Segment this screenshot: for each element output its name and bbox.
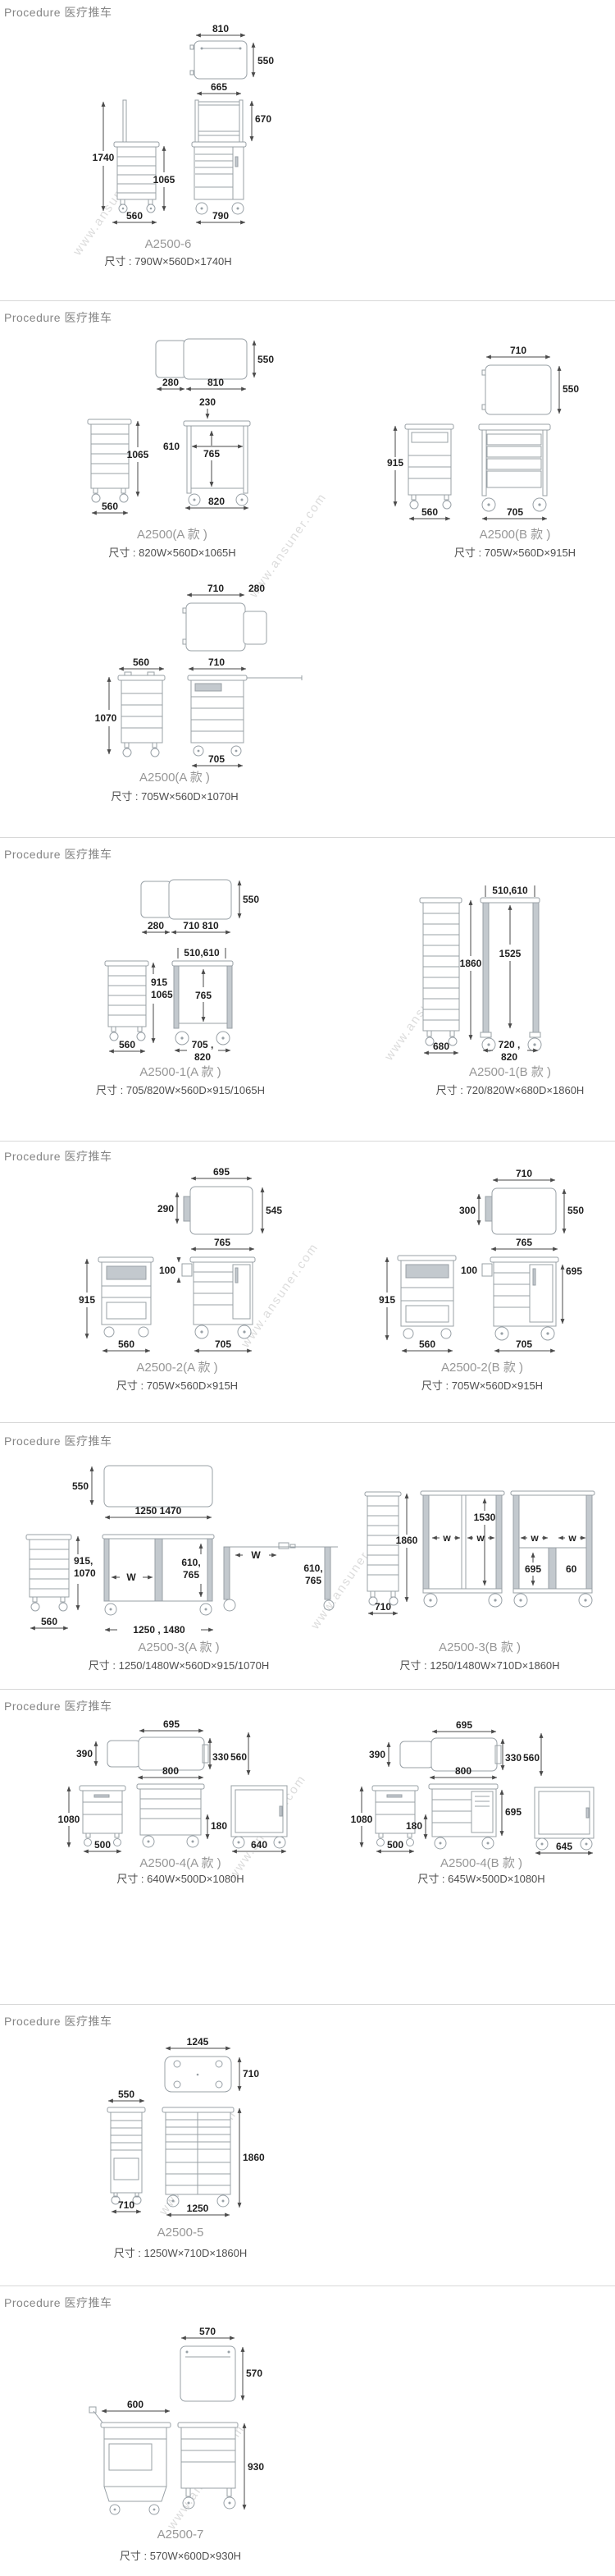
front-view: [490, 1257, 558, 1340]
dim-total-height: 1860: [243, 2152, 265, 2163]
top-view: [141, 880, 231, 919]
drawing-a2500-5: www.ansuner.com 1245 710 550 710: [0, 2005, 615, 2286]
dim-inner2-height-2: 765: [305, 1575, 321, 1586]
dim-front-width-1: 705 ,: [192, 1039, 214, 1050]
dim-rail-width: 665: [211, 81, 227, 93]
dim-back-height: 330: [212, 1751, 229, 1763]
dim-top-width: 695: [213, 1166, 230, 1178]
dim-rail-width: 510,610: [492, 885, 528, 896]
top-view: [104, 1466, 212, 1507]
dim-front-width-2: 820: [194, 1051, 211, 1063]
dim-top-width: 710: [510, 345, 526, 356]
dim-top-width: 695: [163, 1718, 180, 1730]
model-caption: A2500-2(B 款 ): [441, 1361, 523, 1375]
drawing-a2500-4: www.ansuner.com 695 390 330 560 1080 500: [0, 1690, 615, 2005]
size-caption: 尺寸 : 820W×560D×1065H: [108, 547, 235, 559]
dim-top-depth: 550: [72, 1480, 89, 1492]
drawing-a2500-7: www.ansuner.com 570 570 600: [0, 2286, 615, 2576]
dim-gap-height: 180: [211, 1820, 227, 1832]
front-view: [162, 2107, 234, 2207]
dim-w2-label: W: [251, 1549, 261, 1561]
size-caption: 尺寸 : 720/820W×680D×1860H: [436, 1084, 585, 1096]
section-header: Procedure 医疗推车: [4, 846, 112, 862]
section-header: Procedure 医疗推车: [4, 309, 112, 326]
front-view: [172, 961, 233, 1045]
dim-total-height: 1080: [58, 1814, 80, 1825]
section-header: Procedure 医疗推车: [4, 1698, 112, 1714]
dim-front-width: 1250 , 1480: [133, 1624, 185, 1636]
top-view: [183, 603, 266, 651]
section-a2500-6: Procedure 医疗推车 www.ansuner.com 810 550 1…: [0, 0, 615, 300]
section-a2500-3: Procedure 医疗推车 www.ansuner.com 550 1250 …: [0, 1422, 615, 1689]
dim-total-height: 1080: [351, 1814, 373, 1825]
dim-front-width: 800: [162, 1765, 179, 1777]
size-caption: 尺寸 : 705W×560D×915H: [421, 1380, 543, 1392]
size-caption: 尺寸 : 705W×560D×1070H: [111, 790, 238, 803]
dim-w1: w: [442, 1532, 451, 1544]
top-view: [400, 1738, 501, 1771]
section-a2500-5: Procedure 医疗推车 www.ansuner.com 1245 710 …: [0, 2004, 615, 2285]
section-a2500-7: Procedure 医疗推车 www.ansuner.com 570 570 6…: [0, 2285, 615, 2575]
section-a2500: Procedure 医疗推车 www.ansuner.com 550 280 8…: [0, 300, 615, 837]
top-view: [180, 2346, 235, 2401]
dim-side-width: 560: [118, 1338, 134, 1350]
size-caption: 尺寸 : 1250/1480W×560D×915/1070H: [89, 1659, 269, 1672]
side-view: [420, 898, 462, 1045]
drawing-a2500-6: www.ansuner.com 810 550 1740 1065: [0, 0, 615, 300]
dim-cab-width: 645: [556, 1841, 572, 1852]
dim-body-height: 915: [379, 1294, 395, 1306]
dim-top-depth: 550: [563, 383, 579, 395]
model-caption: A2500-4(A 款 ): [139, 1856, 221, 1870]
dim-side-width: 500: [387, 1839, 403, 1851]
dim-ext-depth: 280: [148, 920, 164, 931]
dim-top-depth: 550: [257, 354, 274, 365]
dim-side-width: 560: [102, 501, 118, 512]
side-view: [398, 1256, 456, 1338]
dim-side-width: 560: [119, 1039, 135, 1050]
side-view: [26, 1535, 71, 1611]
drawing-a2500-3: www.ansuner.com 550 1250 1470 915, 1070: [0, 1423, 615, 1690]
section-header: Procedure 医疗推车: [4, 2295, 112, 2311]
top-view: [107, 1737, 208, 1770]
top-view: [156, 339, 247, 379]
dim-top-depth: 560: [230, 1751, 247, 1763]
top-view: [165, 2057, 231, 2092]
dim-top-width: 810: [207, 377, 224, 388]
section-a2500-4: Procedure 医疗推车 www.ansuner.com 695 390 3…: [0, 1689, 615, 2004]
dim-top-depth: 550: [567, 1205, 584, 1216]
size-caption: 尺寸 : 705W×560D×915H: [454, 547, 576, 559]
dim-body-height: 915: [387, 457, 403, 469]
drawing-a2500-2: www.ansuner.com 695 290 545 765 100: [0, 1142, 615, 1423]
side-view: [405, 424, 453, 509]
dim-door-height: 695: [566, 1265, 582, 1277]
side-view: [365, 1492, 401, 1605]
dim-front-width: 790: [212, 210, 229, 222]
dim-top-depth: 545: [266, 1205, 282, 1216]
side-view: [118, 672, 165, 757]
dim-hatch-height: 290: [157, 1203, 174, 1215]
front-view: [190, 1257, 255, 1338]
model-caption: A2500(A 款 ): [139, 771, 210, 785]
dim-top-depth: 550: [243, 894, 259, 905]
dim-cab-width: 640: [251, 1839, 267, 1851]
model-caption: A2500-3(B 款 ): [439, 1640, 521, 1654]
dim-front-width: 705: [507, 506, 523, 518]
dim-w2: w: [476, 1532, 485, 1544]
dim-post-width: 60: [566, 1563, 577, 1575]
dim-w-label: W: [126, 1572, 136, 1583]
dim-top-width: 810: [212, 23, 229, 34]
side-view: [114, 100, 159, 213]
dim-w3: w: [530, 1532, 539, 1544]
dim-body-height-1: 915,: [74, 1555, 93, 1567]
dim-front-bottom-width: 705: [215, 1338, 231, 1350]
dim-top-depth: 550: [257, 55, 274, 66]
side-view: [107, 2107, 145, 2204]
model-caption: A2500(B 款 ): [480, 528, 551, 542]
front-view: [479, 424, 550, 511]
dim-front-width-2: 820: [501, 1051, 517, 1063]
dim-total-height: 1860: [460, 958, 482, 969]
dim-body-height-2: 1065: [151, 989, 173, 1000]
side-view: [372, 1786, 418, 1846]
dim-inner-height-2: 765: [183, 1569, 199, 1581]
dim-top-width: 1250 1470: [135, 1505, 182, 1517]
dim-door-height: 695: [505, 1806, 522, 1818]
dim-body-height: 915: [79, 1294, 95, 1306]
dim-total-height: 1740: [93, 152, 115, 163]
side-view: [88, 419, 131, 502]
model-caption: A2500-1(A 款 ): [139, 1065, 221, 1079]
dim-shelf-height: 695: [525, 1563, 541, 1575]
dim-hatch-height: 300: [459, 1205, 476, 1216]
dim-gap-width: 230: [199, 396, 216, 408]
dim-side-top-width: 550: [118, 2089, 134, 2100]
dim-top-width: 710: [516, 1168, 532, 1179]
dim-side-width: 560: [133, 657, 149, 668]
front-view: [429, 1784, 498, 1849]
dim-bin-height: 100: [461, 1265, 477, 1276]
size-caption: 尺寸 : 1250/1480W×710D×1860H: [399, 1659, 559, 1672]
dim-seat-depth: 390: [76, 1748, 93, 1759]
dim-front-width: 765: [214, 1237, 230, 1248]
size-caption: 尺寸 : 570W×600D×930H: [120, 2550, 241, 2562]
model-caption: A2500-7: [157, 2528, 204, 2542]
model-caption: A2500-5: [157, 2226, 204, 2240]
dim-side-width: 600: [127, 2399, 143, 2410]
model-caption: A2500-3(A 款 ): [138, 1640, 219, 1654]
dim-top-depth: 570: [246, 2368, 262, 2379]
dim-seat-depth: 390: [369, 1749, 385, 1760]
dim-inner-height-1: 610,: [181, 1557, 200, 1568]
drawing-a2500-1: www.ansuner.com 550 280 710 810 510,610 …: [0, 838, 615, 1142]
dim-top-width: 695: [456, 1719, 472, 1731]
size-caption: 尺寸 : 705W×560D×915H: [116, 1380, 238, 1392]
dim-open-height: 765: [195, 990, 212, 1001]
model-caption: A2500-4(B 款 ): [440, 1856, 522, 1870]
top-view: [190, 41, 247, 79]
model-caption: A2500-6: [145, 237, 192, 251]
dim-top-width: 710: [207, 583, 224, 594]
section-header: Procedure 医疗推车: [4, 1148, 112, 1164]
dim-top-width: 710 810: [183, 920, 219, 931]
front-view: [137, 1784, 204, 1847]
dim-top-depth: 710: [243, 2068, 259, 2080]
side-view: [80, 1786, 125, 1846]
dim-side-width: 710: [118, 2199, 134, 2211]
dim-top-width: 1245: [187, 2036, 209, 2048]
dim-total-height: 930: [248, 2461, 264, 2473]
dim-inner-width: 610: [163, 441, 180, 452]
dim-side-width: 560: [421, 506, 438, 518]
dim-body-height-2: 1070: [74, 1567, 96, 1579]
dim-side-width: 710: [375, 1601, 391, 1613]
model-caption: A2500-2(A 款 ): [136, 1361, 217, 1375]
dim-inner-height: 1530: [474, 1512, 496, 1523]
model-caption: A2500(A 款 ): [137, 528, 207, 542]
dim-side-width: 500: [94, 1839, 111, 1851]
dim-back-height: 330: [505, 1752, 522, 1764]
dim-front-width: 705: [208, 753, 225, 765]
dim-body-height: 1065: [153, 174, 175, 185]
dim-side-width: 680: [433, 1041, 449, 1052]
front-view: [184, 421, 250, 506]
size-caption: 尺寸 : 1250W×710D×1860H: [114, 2247, 248, 2259]
dim-inner-height: 1525: [499, 948, 522, 959]
size-caption: 尺寸 : 705/820W×560D×915/1065H: [96, 1084, 265, 1096]
dim-front-width: 800: [455, 1765, 471, 1777]
section-a2500-2: Procedure 医疗推车 www.ansuner.com 695 290 5…: [0, 1141, 615, 1422]
dim-rail-height: 670: [255, 113, 271, 125]
dim-front-bottom-width: 705: [516, 1338, 532, 1350]
catalog-page: Procedure 医疗推车 www.ansuner.com 810 550 1…: [0, 0, 615, 2575]
front-view-1: [421, 1491, 504, 1607]
dim-w4: w: [567, 1532, 576, 1544]
front-view: [188, 675, 302, 756]
dim-inner2-height-1: 610,: [303, 1563, 322, 1574]
top-view: [485, 1188, 556, 1234]
dim-body-height: 1070: [95, 712, 117, 724]
top-view: [184, 1187, 253, 1234]
dim-side-width: 560: [419, 1338, 435, 1350]
dim-side-width: 560: [41, 1616, 57, 1627]
size-caption: 尺寸 : 640W×500D×1080H: [116, 1873, 244, 1885]
section-header: Procedure 医疗推车: [4, 4, 112, 21]
side-view: [89, 2407, 171, 2514]
size-caption: 尺寸 : 645W×500D×1080H: [417, 1873, 544, 1885]
front-view-2: [511, 1491, 594, 1607]
dim-front-width: 1250: [187, 2203, 209, 2214]
dim-front-width: 820: [208, 496, 225, 507]
dim-ext-depth: 280: [248, 583, 265, 594]
front-view: [192, 100, 246, 214]
drawing-a2500: www.ansuner.com 550 280 810 230 610 765: [0, 301, 615, 838]
dim-top-depth: 560: [523, 1752, 540, 1764]
front-view: [481, 898, 541, 1051]
dim-rail-width: 510,610: [184, 947, 220, 959]
top-view: [482, 365, 551, 414]
dim-front-top-width: 710: [208, 657, 225, 668]
dim-total-height: 1860: [396, 1535, 418, 1546]
section-header: Procedure 医疗推车: [4, 2013, 112, 2029]
dim-side-width: 560: [126, 210, 143, 222]
dim-gap-height: 180: [406, 1820, 422, 1832]
side-view: [98, 1257, 153, 1337]
dim-body-height: 1065: [127, 449, 149, 460]
dim-body-height-1: 915: [151, 977, 167, 988]
model-caption: A2500-1(B 款 ): [469, 1065, 551, 1079]
dim-front-width: 765: [516, 1237, 532, 1248]
side-view: [105, 961, 148, 1041]
dim-ext-depth: 280: [162, 377, 179, 388]
section-a2500-1: Procedure 医疗推车 www.ansuner.com 550 280 7…: [0, 837, 615, 1141]
dim-bin-height: 100: [159, 1265, 175, 1276]
dim-top-width: 570: [199, 2326, 216, 2337]
dim-open-height: 765: [203, 448, 220, 460]
size-caption: 尺寸 : 790W×560D×1740H: [104, 255, 231, 268]
dim-front-width-1: 720 ,: [499, 1039, 521, 1050]
section-header: Procedure 医疗推车: [4, 1433, 112, 1449]
